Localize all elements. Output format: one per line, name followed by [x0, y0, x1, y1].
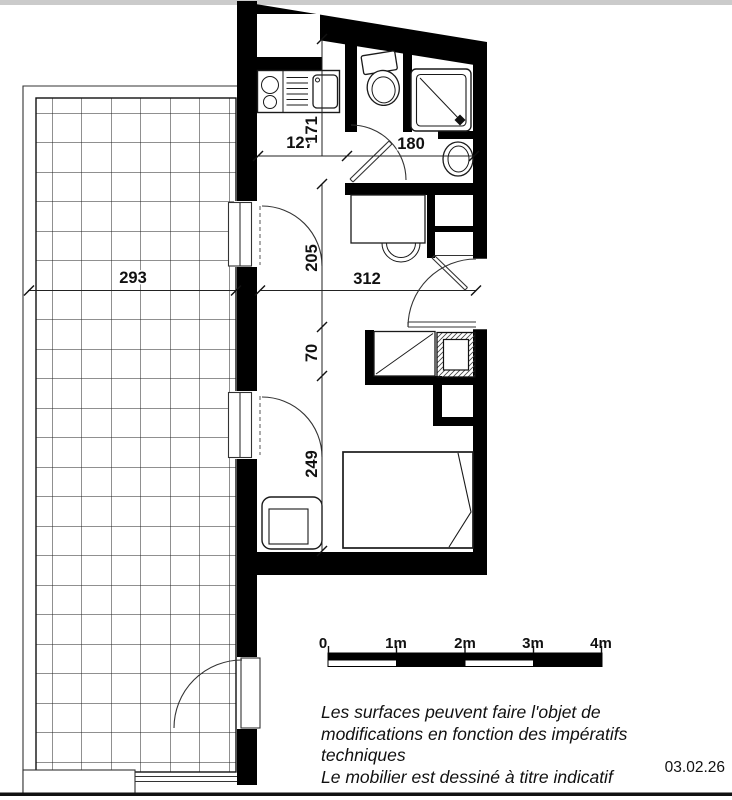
scale-bar: 0 1m 2m 3m 4m	[319, 635, 612, 667]
terrace-step	[23, 770, 135, 794]
shower	[411, 69, 471, 131]
note-line-4: Le mobilier est dessiné à titre indicati…	[321, 767, 651, 789]
dim-room-upper-depth: 205	[303, 244, 321, 272]
kitchen-sink	[313, 75, 338, 108]
kitchen-top-wall	[246, 57, 322, 72]
floor-plan-page: 293 312 127 180 171 205 70 249 0 1m 2m 3…	[0, 0, 732, 800]
duct-bottom-bar	[433, 417, 487, 426]
duct-top-bar	[442, 377, 475, 385]
french-window-b	[229, 393, 323, 458]
dim-kitchen-depth: 171	[303, 116, 321, 144]
scale-label-0: 0	[319, 635, 327, 652]
wardrobe-bottom-bar	[365, 376, 442, 385]
page-bottom-rule	[0, 793, 732, 797]
terrace-tile-grid	[36, 98, 236, 772]
right-wall-upper	[473, 43, 487, 258]
dim-terrace-width: 293	[119, 269, 147, 287]
bathroom-left-wall	[345, 40, 357, 132]
toilet	[361, 51, 403, 108]
dim-room-mid-depth: 70	[303, 344, 321, 362]
window-b-swing-arc	[262, 397, 322, 457]
entrance-door-swing-arc	[408, 259, 476, 327]
scale-label-4m: 4m	[590, 635, 612, 652]
terrace-wall-lower-stub	[237, 729, 257, 785]
bottom-wall	[237, 552, 487, 575]
duct-shaft	[437, 333, 475, 378]
washbasin	[443, 142, 473, 176]
wall-niche	[248, 14, 320, 59]
scale-label-2m: 2m	[454, 635, 476, 652]
note-line-2: modifications en fonction des impératifs	[321, 724, 651, 746]
shower-half-wall	[438, 131, 477, 139]
wardrobe	[374, 332, 435, 377]
bathroom-bottom-wall	[345, 183, 487, 195]
window-top-strip	[0, 0, 732, 5]
dim-bathroom-width: 180	[397, 135, 425, 153]
note-line-3: techniques	[321, 745, 651, 767]
scale-label-1m: 1m	[385, 635, 407, 652]
furniture	[258, 51, 476, 549]
note-line-1: Les surfaces peuvent faire l'objet de	[321, 702, 651, 724]
plan-notes: Les surfaces peuvent faire l'objet de mo…	[321, 702, 651, 788]
bathroom-door	[350, 125, 406, 182]
armchair	[262, 497, 322, 549]
plan-date: 03.02.26	[650, 759, 725, 777]
terrace-railing	[135, 777, 238, 782]
entrance-door	[408, 256, 476, 328]
desk-chair	[382, 243, 420, 262]
terrace-wall-upper-stub	[237, 575, 257, 657]
floor-plan-drawing: 293 312 127 180 171 205 70 249 0 1m 2m 3…	[0, 0, 732, 800]
closet-shelf-bar	[427, 226, 473, 232]
wardrobe-left-stub	[365, 330, 374, 378]
dim-room-lower-depth: 249	[303, 450, 321, 478]
desk	[351, 195, 425, 243]
dim-room-width: 312	[353, 270, 381, 288]
kitchenette	[258, 71, 340, 113]
scale-label-3m: 3m	[522, 635, 544, 652]
terrace	[23, 86, 238, 794]
left-wall	[237, 1, 257, 575]
bed	[343, 452, 473, 548]
